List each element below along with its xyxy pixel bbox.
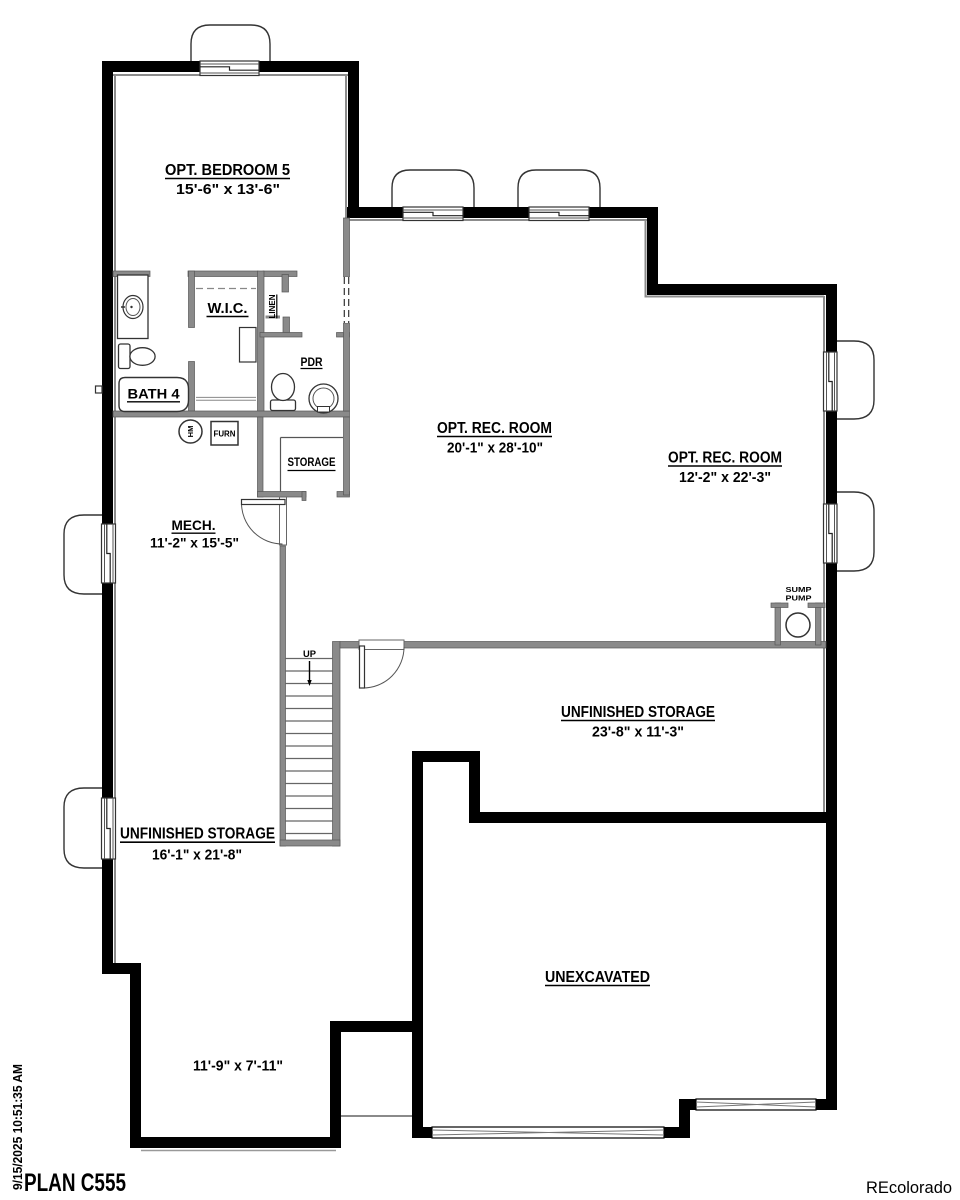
svg-text:UP: UP bbox=[303, 649, 317, 660]
svg-text:OPT. REC. ROOM: OPT. REC. ROOM bbox=[437, 420, 552, 437]
svg-text:9/15/2025 10:51:35 AM: 9/15/2025 10:51:35 AM bbox=[11, 1064, 25, 1190]
svg-text:16'-1" x 21'-8": 16'-1" x 21'-8" bbox=[152, 847, 242, 864]
svg-text:11'-2" x 15'-5": 11'-2" x 15'-5" bbox=[150, 535, 239, 551]
svg-text:UNFINISHED STORAGE: UNFINISHED STORAGE bbox=[561, 704, 715, 721]
svg-text:20'-1" x 28'-10": 20'-1" x 28'-10" bbox=[447, 440, 543, 457]
svg-text:BATH 4: BATH 4 bbox=[128, 386, 180, 402]
svg-text:PDR: PDR bbox=[301, 357, 324, 369]
svg-text:PLAN C555: PLAN C555 bbox=[24, 1169, 126, 1197]
svg-text:REcolorado: REcolorado bbox=[866, 1179, 952, 1197]
svg-text:MECH.: MECH. bbox=[172, 517, 216, 533]
svg-text:LINEN: LINEN bbox=[267, 295, 277, 319]
svg-text:11'-9" x 7'-11": 11'-9" x 7'-11" bbox=[193, 1058, 283, 1075]
svg-text:UNFINISHED STORAGE: UNFINISHED STORAGE bbox=[120, 826, 275, 843]
svg-text:UNEXCAVATED: UNEXCAVATED bbox=[545, 969, 650, 986]
svg-text:HM: HM bbox=[186, 426, 195, 438]
svg-text:15'-6" x 13'-6": 15'-6" x 13'-6" bbox=[176, 181, 280, 198]
svg-text:PUMP: PUMP bbox=[786, 594, 812, 603]
svg-text:FURN: FURN bbox=[214, 429, 236, 439]
svg-text:W.I.C.: W.I.C. bbox=[208, 301, 248, 317]
svg-text:OPT. BEDROOM 5: OPT. BEDROOM 5 bbox=[165, 162, 290, 179]
svg-text:23'-8" x 11'-3": 23'-8" x 11'-3" bbox=[592, 724, 684, 741]
svg-text:12'-2" x 22'-3": 12'-2" x 22'-3" bbox=[679, 469, 771, 486]
svg-text:OPT. REC. ROOM: OPT. REC. ROOM bbox=[668, 450, 782, 467]
svg-text:STORAGE: STORAGE bbox=[288, 457, 336, 469]
